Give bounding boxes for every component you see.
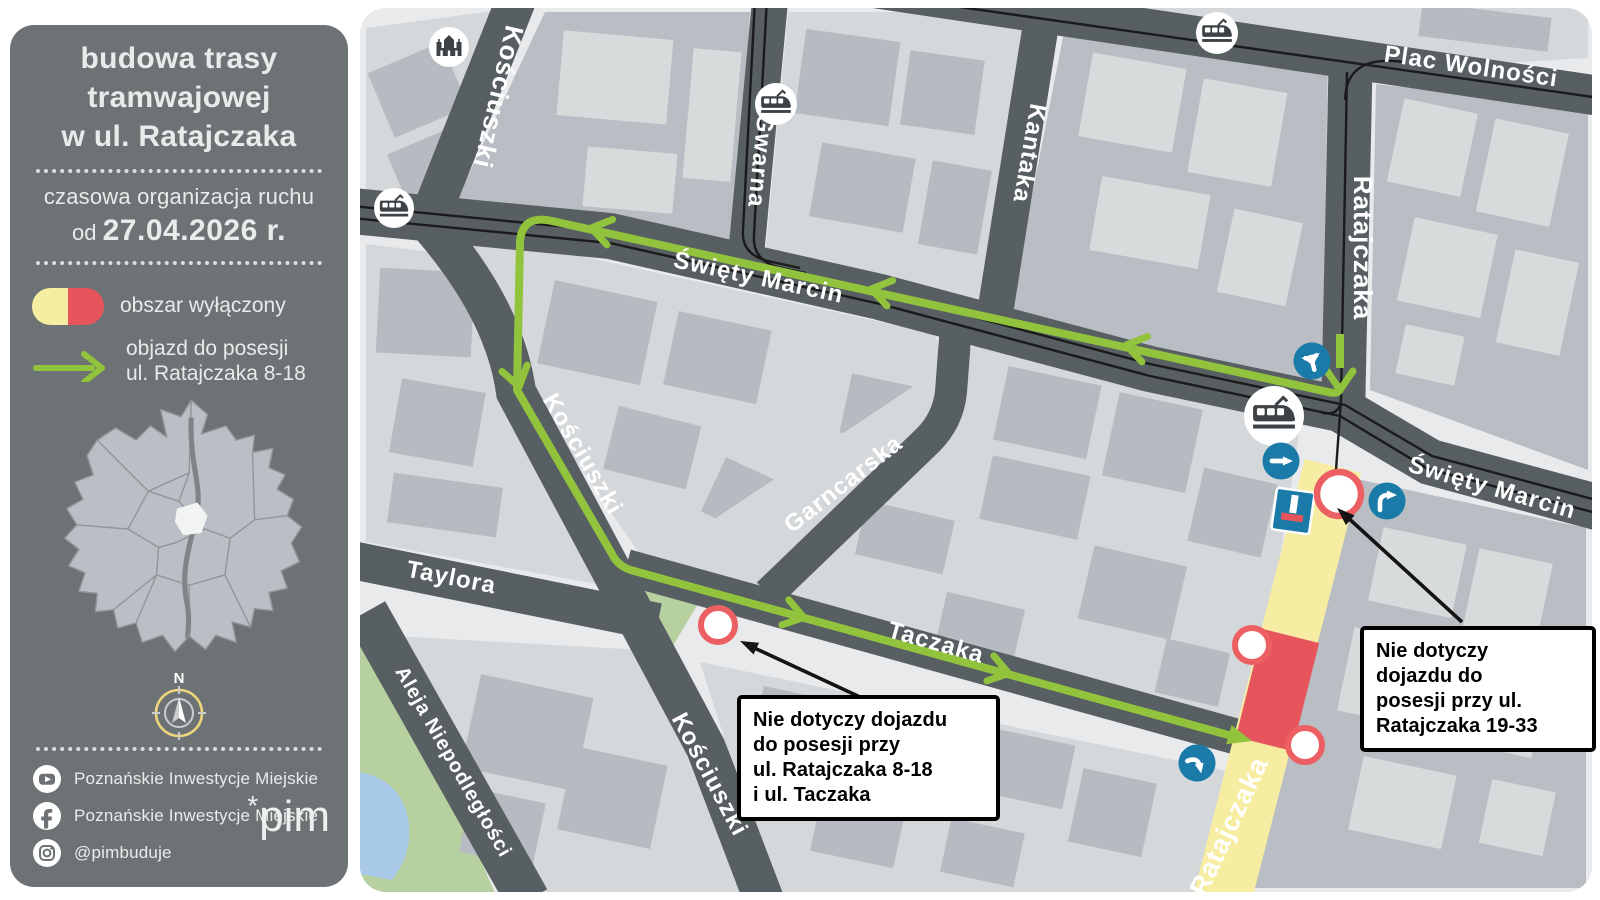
sidebar-panel: budowa trasy tramwajowej w ul. Ratajczak…: [10, 25, 348, 887]
title-line: w ul. Ratajczaka: [10, 117, 348, 156]
tram-stop-icon: [1244, 386, 1304, 446]
landmark-icon: [429, 27, 469, 67]
callout-ratajczaka-19-33: Nie dotyczy dojazdu do posesji przy ul. …: [1360, 626, 1596, 752]
compass-n-label: N: [174, 670, 185, 687]
social-label: Poznańskie Inwestycje Miejskie: [74, 769, 318, 789]
dead-end-sign-icon: [1271, 488, 1314, 535]
date-line: od 27.04.2026 r.: [10, 214, 348, 248]
excluded-area-swatch: [32, 288, 104, 325]
callout-ratajczaka-8-18: Nie dotyczy dojazdu do posesji przy ul. …: [737, 695, 1000, 821]
facebook-icon: [32, 801, 62, 831]
legend-excluded-area: obszar wyłączony: [10, 288, 348, 325]
callout-line: do posesji przy: [753, 733, 984, 758]
callout-line: Nie dotyczy: [1376, 639, 1580, 664]
straight-right-sign-icon: [1263, 443, 1300, 480]
social-label: @pimbuduje: [74, 843, 172, 863]
turn-right-sign-icon: [1369, 483, 1406, 520]
tram-stop-icon: [755, 83, 797, 125]
poznan-minimap: [36, 389, 322, 669]
callout-line: posesji przy ul.: [1376, 689, 1580, 714]
title-line: tramwajowej: [10, 78, 348, 117]
dotted-divider: [36, 169, 322, 173]
detour-arrow-icon: [32, 342, 110, 382]
subtitle: czasowa organizacja ruchu: [10, 184, 348, 210]
compass-icon: N: [147, 669, 211, 743]
page-title: budowa trasy tramwajowej w ul. Ratajczak…: [10, 39, 348, 156]
pim-logo-text: pim: [259, 792, 330, 841]
legend-excluded-label: obszar wyłączony: [120, 294, 286, 319]
legend-detour-label: objazd do posesji ul. Ratajczaka 8-18: [126, 337, 306, 387]
callout-line: dojazdu do: [1376, 664, 1580, 689]
closure-marker: [701, 608, 735, 642]
date-prefix: od: [72, 220, 96, 245]
title-line: budowa trasy: [10, 39, 348, 78]
tram-stop-icon: [374, 188, 414, 228]
yellow-swatch: [32, 288, 68, 325]
street-label-ratajczaka-north: Ratajczaka: [1348, 176, 1378, 320]
pim-logo-star: *: [247, 790, 258, 821]
callout-line: Ratajczaka 19-33: [1376, 714, 1580, 739]
legend-detour: objazd do posesji ul. Ratajczaka 8-18: [10, 337, 348, 387]
dotted-divider: [36, 747, 322, 751]
callout-line: Nie dotyczy dojazdu: [753, 708, 984, 733]
closure-marker: [1288, 728, 1322, 762]
instagram-icon: [32, 838, 62, 868]
start-date: 27.04.2026 r.: [103, 214, 286, 247]
legend-detour-line: objazd do posesji: [126, 337, 306, 362]
closure-marker: [1235, 628, 1269, 662]
dotted-divider: [36, 261, 322, 265]
red-swatch: [68, 288, 104, 325]
tram-stop-icon: [1196, 12, 1238, 54]
youtube-icon: [32, 764, 62, 794]
callout-line: ul. Ratajczaka 8-18: [753, 758, 984, 783]
social-row-youtube: Poznańskie Inwestycje Miejskie: [32, 764, 326, 794]
callout-line: i ul. Taczaka: [753, 783, 984, 808]
social-row-instagram: @pimbuduje: [32, 838, 326, 868]
legend-detour-line: ul. Ratajczaka 8-18: [126, 362, 306, 387]
pim-logo: *pim: [247, 792, 330, 839]
